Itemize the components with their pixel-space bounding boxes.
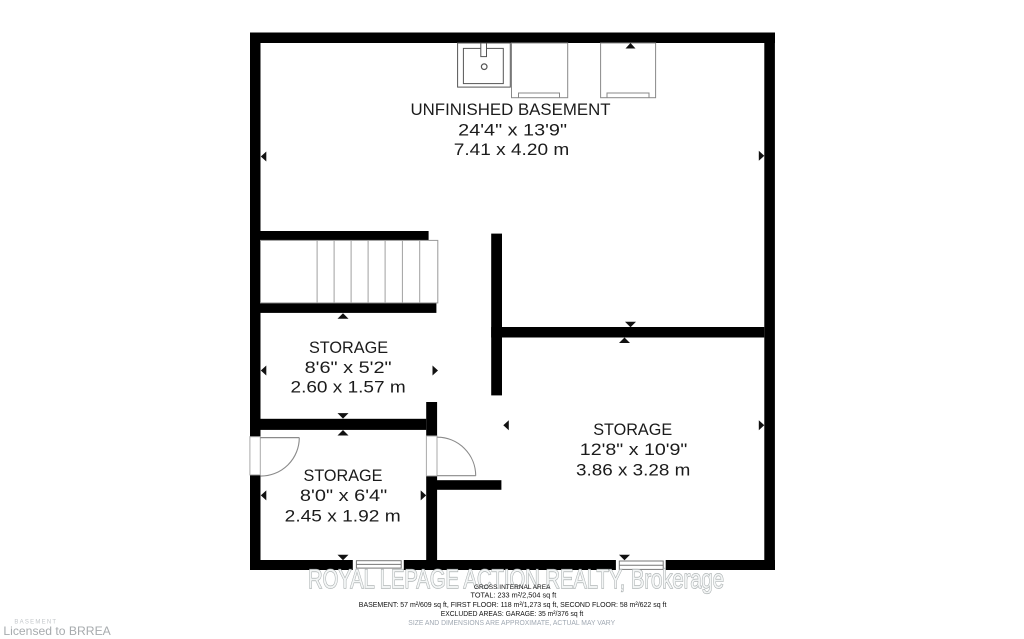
svg-text:12'8" x 10'9": 12'8" x 10'9"	[580, 440, 688, 459]
svg-text:STORAGE: STORAGE	[593, 420, 672, 439]
svg-text:8'0" x 6'4": 8'0" x 6'4"	[300, 486, 387, 505]
svg-text:8'6" x 5'2": 8'6" x 5'2"	[305, 358, 392, 377]
svg-text:7.41 x 4.20 m: 7.41 x 4.20 m	[454, 140, 569, 159]
svg-text:Licensed to BRREA: Licensed to BRREA	[3, 624, 111, 638]
svg-text:24'4" x 13'9": 24'4" x 13'9"	[458, 120, 567, 139]
svg-text:3.86 x 3.28 m: 3.86 x 3.28 m	[576, 460, 690, 479]
svg-text:BASEMENT: 57 m²/609 sq ft, FIR: BASEMENT: 57 m²/609 sq ft, FIRST FLOOR: …	[359, 600, 667, 609]
svg-text:TOTAL: 233 m²/2,504 sq ft: TOTAL: 233 m²/2,504 sq ft	[471, 590, 558, 599]
svg-text:SIZE AND DIMENSIONS ARE APPROX: SIZE AND DIMENSIONS ARE APPROXIMATE, ACT…	[408, 618, 615, 627]
svg-text:2.60 x 1.57 m: 2.60 x 1.57 m	[291, 378, 406, 397]
svg-text:STORAGE: STORAGE	[309, 338, 388, 357]
svg-text:UNFINISHED BASEMENT: UNFINISHED BASEMENT	[411, 100, 611, 119]
svg-text:STORAGE: STORAGE	[304, 466, 383, 485]
svg-text:2.45 x 1.92 m: 2.45 x 1.92 m	[285, 506, 401, 525]
